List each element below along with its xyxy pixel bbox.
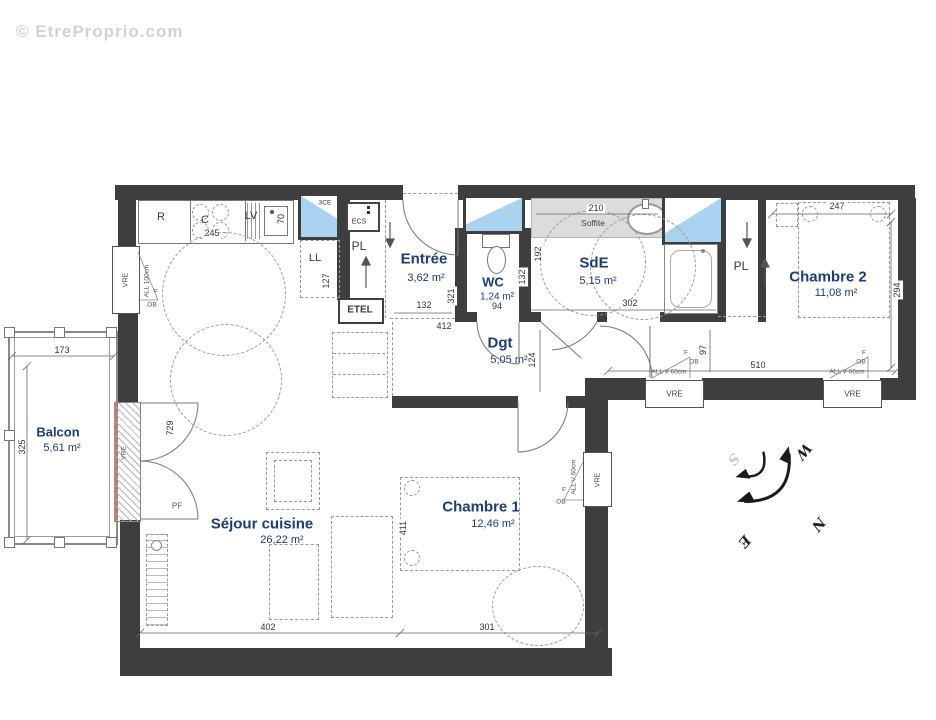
room-area-entree: 3,62 m²: [407, 272, 444, 284]
room-area-sde: 5,15 m²: [579, 275, 616, 287]
tilt-turn-label: OB: [556, 499, 565, 506]
nightstand: [776, 203, 798, 227]
window-vre-kitchen: VRE: [112, 246, 140, 314]
wall: [120, 648, 612, 676]
compass-north: N: [808, 514, 828, 534]
railing-post: [54, 537, 65, 548]
wall: [392, 396, 518, 408]
wall: [880, 378, 916, 400]
dim-173: 173: [52, 346, 71, 356]
room-label-chambre1: Chambre 1: [442, 499, 520, 516]
wall: [115, 185, 403, 200]
wall: [600, 378, 646, 400]
watermark: © EtreProprio.com: [16, 22, 183, 42]
pillow: [802, 206, 818, 222]
water-heater-label: ECS: [352, 219, 366, 226]
room-label-balcon: Balcon: [36, 425, 79, 440]
plan-linework: [0, 0, 936, 720]
etel-label: ETEL: [347, 305, 373, 316]
wall: [566, 396, 585, 408]
sill-label-kitchen: ALL 100cm: [144, 265, 151, 298]
dim-729: 729: [166, 418, 176, 437]
dim-124: 124: [528, 350, 538, 369]
tilt-turn-label: OB: [856, 359, 865, 366]
railing-post: [106, 327, 117, 338]
dim-lines: [8, 210, 900, 637]
wall: [585, 505, 608, 650]
wall: [531, 312, 541, 322]
dining-table: [170, 324, 282, 436]
railing-post: [4, 327, 15, 338]
dim-321: 321: [447, 286, 457, 305]
room-label-chambre2: Chambre 2: [789, 269, 867, 286]
dim-70: 70: [277, 212, 287, 226]
dim-510: 510: [748, 361, 767, 371]
wall: [120, 520, 140, 650]
washer-spot: [300, 240, 340, 298]
railing-post: [54, 327, 65, 338]
pillow: [870, 206, 886, 222]
room-label-wc: WC: [482, 275, 504, 290]
entry-threshold-dashed: [403, 193, 458, 194]
dot: [367, 211, 370, 214]
closet-label-entree: PL: [352, 239, 367, 253]
closet2-front-dashed: [718, 316, 766, 317]
sideboard: [332, 332, 388, 398]
compass-rose: [724, 434, 806, 518]
pf-label: PF: [172, 502, 182, 511]
closet-front-dashed: [385, 200, 386, 318]
dim-294: 294: [893, 280, 903, 299]
room-area-balcon: 5,61 m²: [43, 442, 80, 454]
room-label-sde: SdE: [579, 255, 608, 272]
pillow: [404, 550, 420, 566]
basin-faucet: [642, 199, 649, 209]
dim-97: 97: [699, 343, 709, 357]
wall: [702, 378, 823, 400]
wall: [118, 198, 136, 246]
burner: [212, 204, 229, 221]
pillow: [404, 480, 420, 496]
shower-drain: [701, 249, 705, 253]
room-label-entree: Entrée: [401, 251, 448, 268]
closet-label-ch2: PL: [734, 259, 749, 273]
cooktop-label: C: [201, 214, 209, 226]
counter-divider: [190, 201, 191, 241]
dim-301: 301: [477, 623, 496, 633]
fixed-label: F: [154, 289, 158, 296]
room-area-chambre1: 12,46 m²: [471, 518, 514, 530]
toilet-bowl: [487, 246, 506, 274]
armchair-cushion: [274, 460, 312, 502]
dishwasher-label: LV: [245, 210, 258, 222]
dim-325: 325: [18, 437, 28, 456]
dot: [367, 206, 370, 209]
window-wc: [463, 195, 525, 234]
dim-302: 302: [620, 299, 639, 309]
sideboard-shelf: [333, 353, 385, 354]
wall: [455, 312, 477, 322]
fridge-label: R: [157, 211, 165, 223]
compass-east: E: [734, 532, 753, 550]
coffee-table: [269, 544, 319, 620]
railing-post: [4, 537, 15, 548]
dim-127: 127: [322, 271, 332, 290]
room-area-dgt: 5,05 m²: [490, 354, 527, 366]
railing-post: [4, 430, 15, 441]
tilt-turn-label: OB: [147, 302, 156, 309]
sill-label-ch1: ALL V 60cm: [571, 459, 578, 494]
fixed-label: F: [684, 350, 688, 357]
wall: [118, 312, 138, 402]
dim-132-entree: 132: [414, 301, 433, 311]
balcony-door-vre: [114, 402, 141, 522]
window-vre-ch1: VRE: [583, 452, 612, 507]
compass-south: S: [724, 450, 743, 468]
dim-411: 411: [399, 519, 409, 537]
balcony-door-label: VRE: [121, 446, 128, 459]
sejour-dgt-boundary: [392, 322, 393, 396]
fixed-label: F: [862, 350, 866, 357]
room-area-chambre2: 11,08 m²: [815, 287, 858, 299]
glass-highlight: [466, 198, 522, 231]
railing-post: [106, 537, 117, 548]
fixed-label: F: [562, 487, 566, 494]
dim-132-wc: 132: [518, 267, 528, 286]
room-label-sejour: Séjour cuisine: [211, 516, 314, 533]
turning-circle: [492, 566, 584, 646]
window-vre-corridor-2: VRE: [823, 380, 882, 408]
washer-label: LL: [309, 252, 321, 264]
dim-94: 94: [490, 302, 504, 312]
sideboard-shelf: [333, 374, 385, 375]
sofa: [331, 516, 393, 618]
window-vre-corridor-1: VRE: [645, 380, 704, 408]
sill-label-corridor-1: ALL V 60cm: [651, 369, 686, 376]
floor-plan: © EtreProprio.com Balcon 5,61 m² VRE 729…: [0, 0, 936, 720]
flue-label: 3CE: [319, 200, 332, 207]
dim-412: 412: [434, 322, 453, 332]
faucet: [270, 210, 274, 214]
wall: [758, 195, 766, 322]
dim-402: 402: [258, 623, 277, 633]
room-label-dgt: Dgt: [488, 335, 513, 352]
dim-192: 192: [534, 244, 544, 263]
dim-210: 210: [586, 204, 605, 214]
tilt-turn-label: OB: [689, 359, 698, 366]
dim-247: 247: [827, 202, 846, 212]
threshold-dashed: [390, 318, 455, 319]
water-heater: [346, 202, 380, 232]
compass-west: W: [792, 440, 814, 462]
radiator-valve: [151, 540, 162, 551]
sill-label-corridor-2: ALL V 60cm: [829, 369, 864, 376]
